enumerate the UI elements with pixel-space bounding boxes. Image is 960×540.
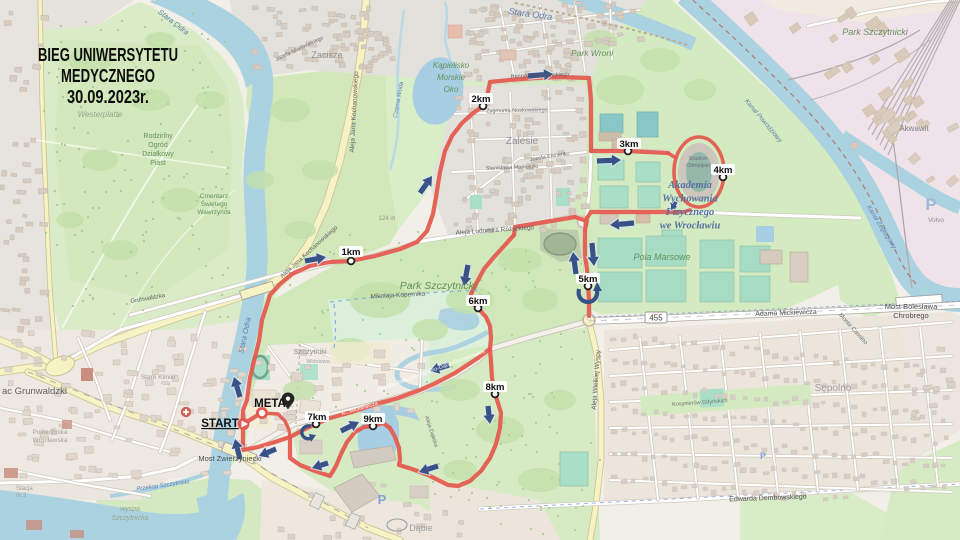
svg-text:MEDYCZNEGO: MEDYCZNEGO: [61, 65, 155, 86]
svg-text:BIEG UNIWERSYTETU: BIEG UNIWERSYTETU: [38, 44, 178, 65]
svg-text:30.09.2023r.: 30.09.2023r.: [67, 86, 149, 107]
